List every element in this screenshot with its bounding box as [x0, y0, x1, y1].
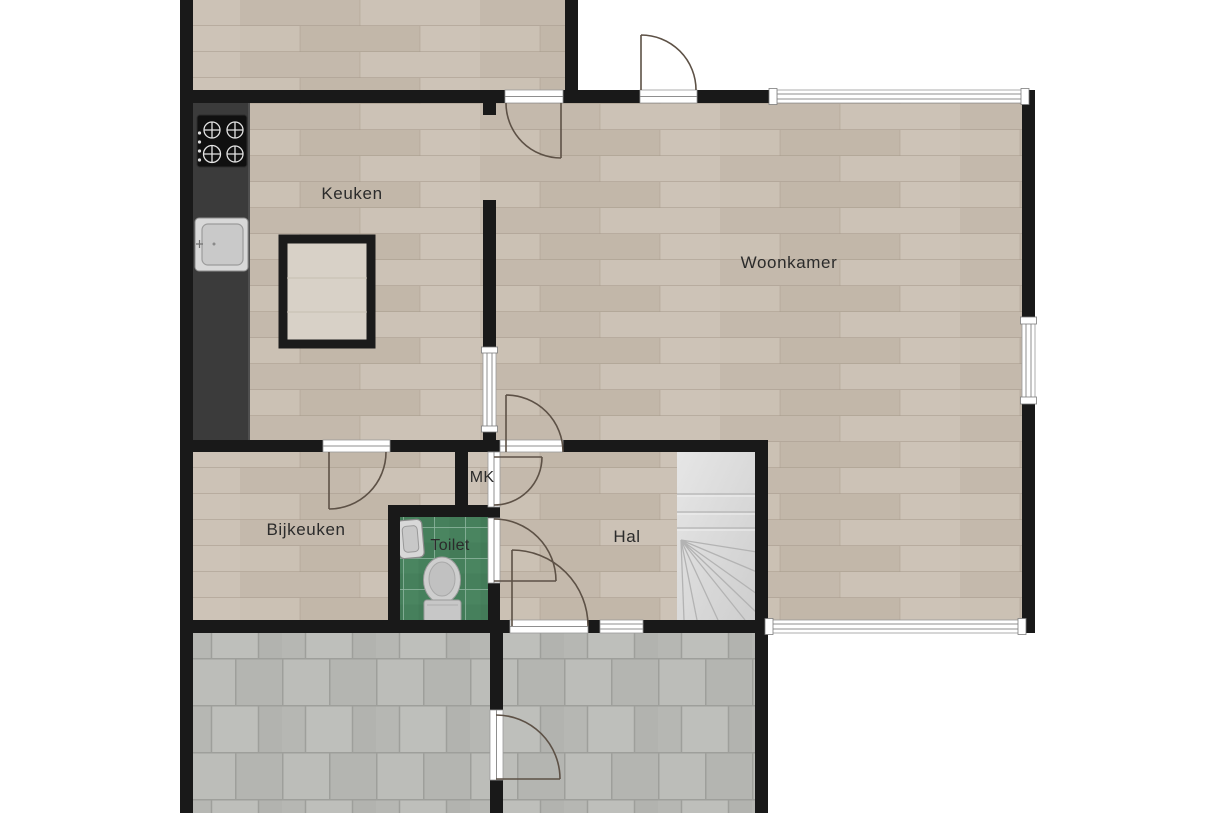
kitchen-island: [283, 239, 371, 344]
top-room-floor: [193, 0, 565, 91]
toilet-icon: [424, 557, 462, 622]
threshold-bijkeuken: [323, 440, 390, 452]
room-label-mk: MK: [470, 469, 495, 487]
room-label-hal: Hal: [613, 527, 640, 547]
threshold-toproom-keuken: [505, 90, 563, 103]
window-hal-sidelight: [600, 620, 643, 633]
window-top: [769, 89, 1029, 105]
door-swing-backdoor: [641, 35, 696, 90]
left-tiled-room-floor: [193, 633, 490, 813]
washbasin-icon: [396, 519, 424, 559]
floorplan-drawing: [0, 0, 1220, 813]
floorplan-canvas: Keuken Woonkamer Bijkeuken MK Toilet Hal: [0, 0, 1220, 813]
room-label-woonkamer: Woonkamer: [741, 253, 838, 273]
glass-partition-keuken: [482, 347, 498, 432]
window-right: [1021, 317, 1037, 404]
window-bottom: [765, 619, 1026, 635]
threshold-tiled-rooms: [490, 710, 503, 780]
room-label-keuken: Keuken: [321, 184, 382, 204]
staircase: [677, 452, 757, 620]
threshold-frontdoor: [510, 620, 588, 633]
room-label-bijkeuken: Bijkeuken: [266, 520, 345, 540]
stove-icon: [197, 115, 247, 167]
threshold-backdoor: [640, 90, 697, 103]
right-tiled-room-floor: [503, 633, 757, 813]
main-wood-floor: [193, 103, 1022, 622]
room-label-toilet: Toilet: [430, 537, 469, 555]
sink-icon: [195, 218, 248, 271]
threshold-hal-top: [500, 440, 563, 452]
threshold-toilet: [488, 518, 500, 583]
floors: [193, 0, 1022, 813]
